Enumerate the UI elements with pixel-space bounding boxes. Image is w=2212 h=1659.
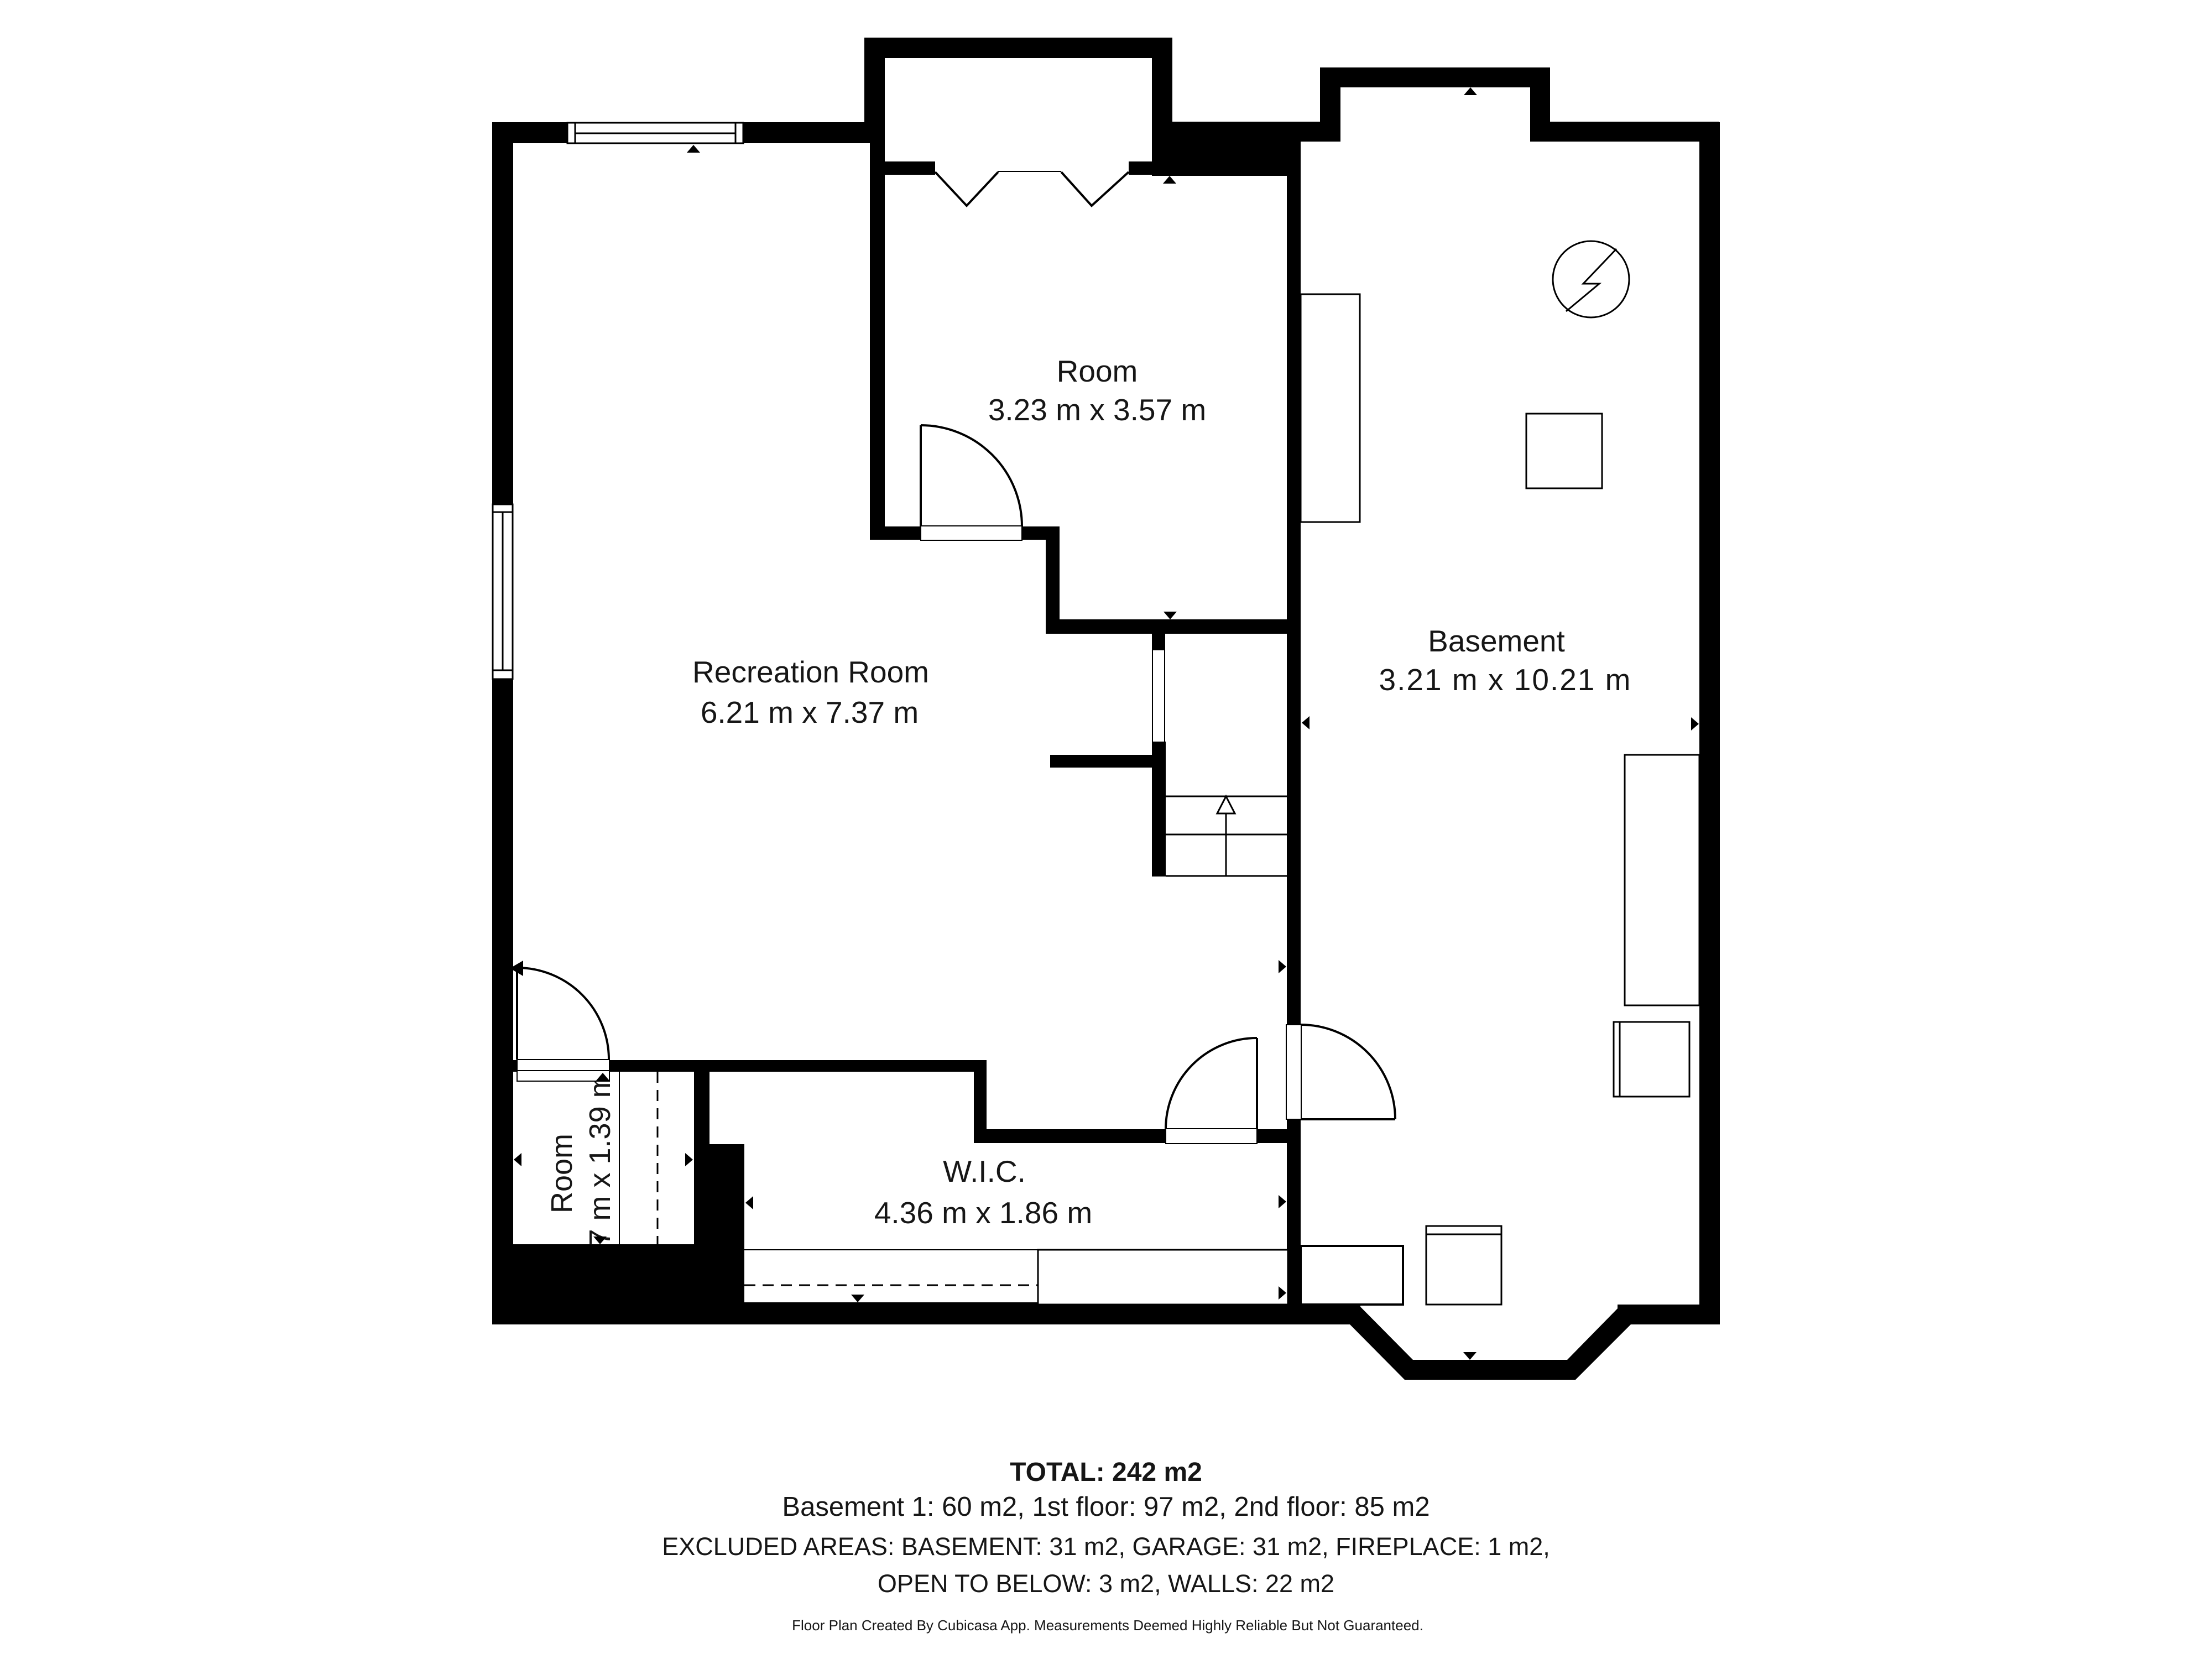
svg-text:TOTAL: 242 m2: TOTAL: 242 m2 xyxy=(1010,1458,1202,1487)
svg-text:Basement: Basement xyxy=(1428,624,1565,658)
svg-text:Basement 1: 60 m2, 1st floor:: Basement 1: 60 m2, 1st floor: 97 m2, 2nd… xyxy=(782,1492,1430,1522)
svg-text:EXCLUDED AREAS: BASEMENT: 31 m: EXCLUDED AREAS: BASEMENT: 31 m2, GARAGE:… xyxy=(662,1532,1550,1561)
svg-text:6.21 m x 7.37 m: 6.21 m x 7.37 m xyxy=(701,695,919,729)
svg-text:Recreation Room: Recreation Room xyxy=(692,655,929,689)
svg-text:4.36 m x 1.86 m: 4.36 m x 1.86 m xyxy=(874,1196,1092,1230)
svg-text:3.23 m x 3.57 m: 3.23 m x 3.57 m xyxy=(988,393,1206,427)
svg-text:OPEN TO BELOW: 3 m2, WALLS: 22: OPEN TO BELOW: 3 m2, WALLS: 22 m2 xyxy=(878,1569,1334,1598)
svg-text:Room: Room xyxy=(545,1134,578,1213)
svg-text:Floor Plan Created By Cubicasa: Floor Plan Created By Cubicasa App. Meas… xyxy=(792,1617,1423,1634)
svg-text:3.21 m x 10.21 m: 3.21 m x 10.21 m xyxy=(1379,662,1632,697)
svg-text:W.I.C.: W.I.C. xyxy=(943,1154,1026,1188)
svg-text:Room: Room xyxy=(1057,354,1138,388)
